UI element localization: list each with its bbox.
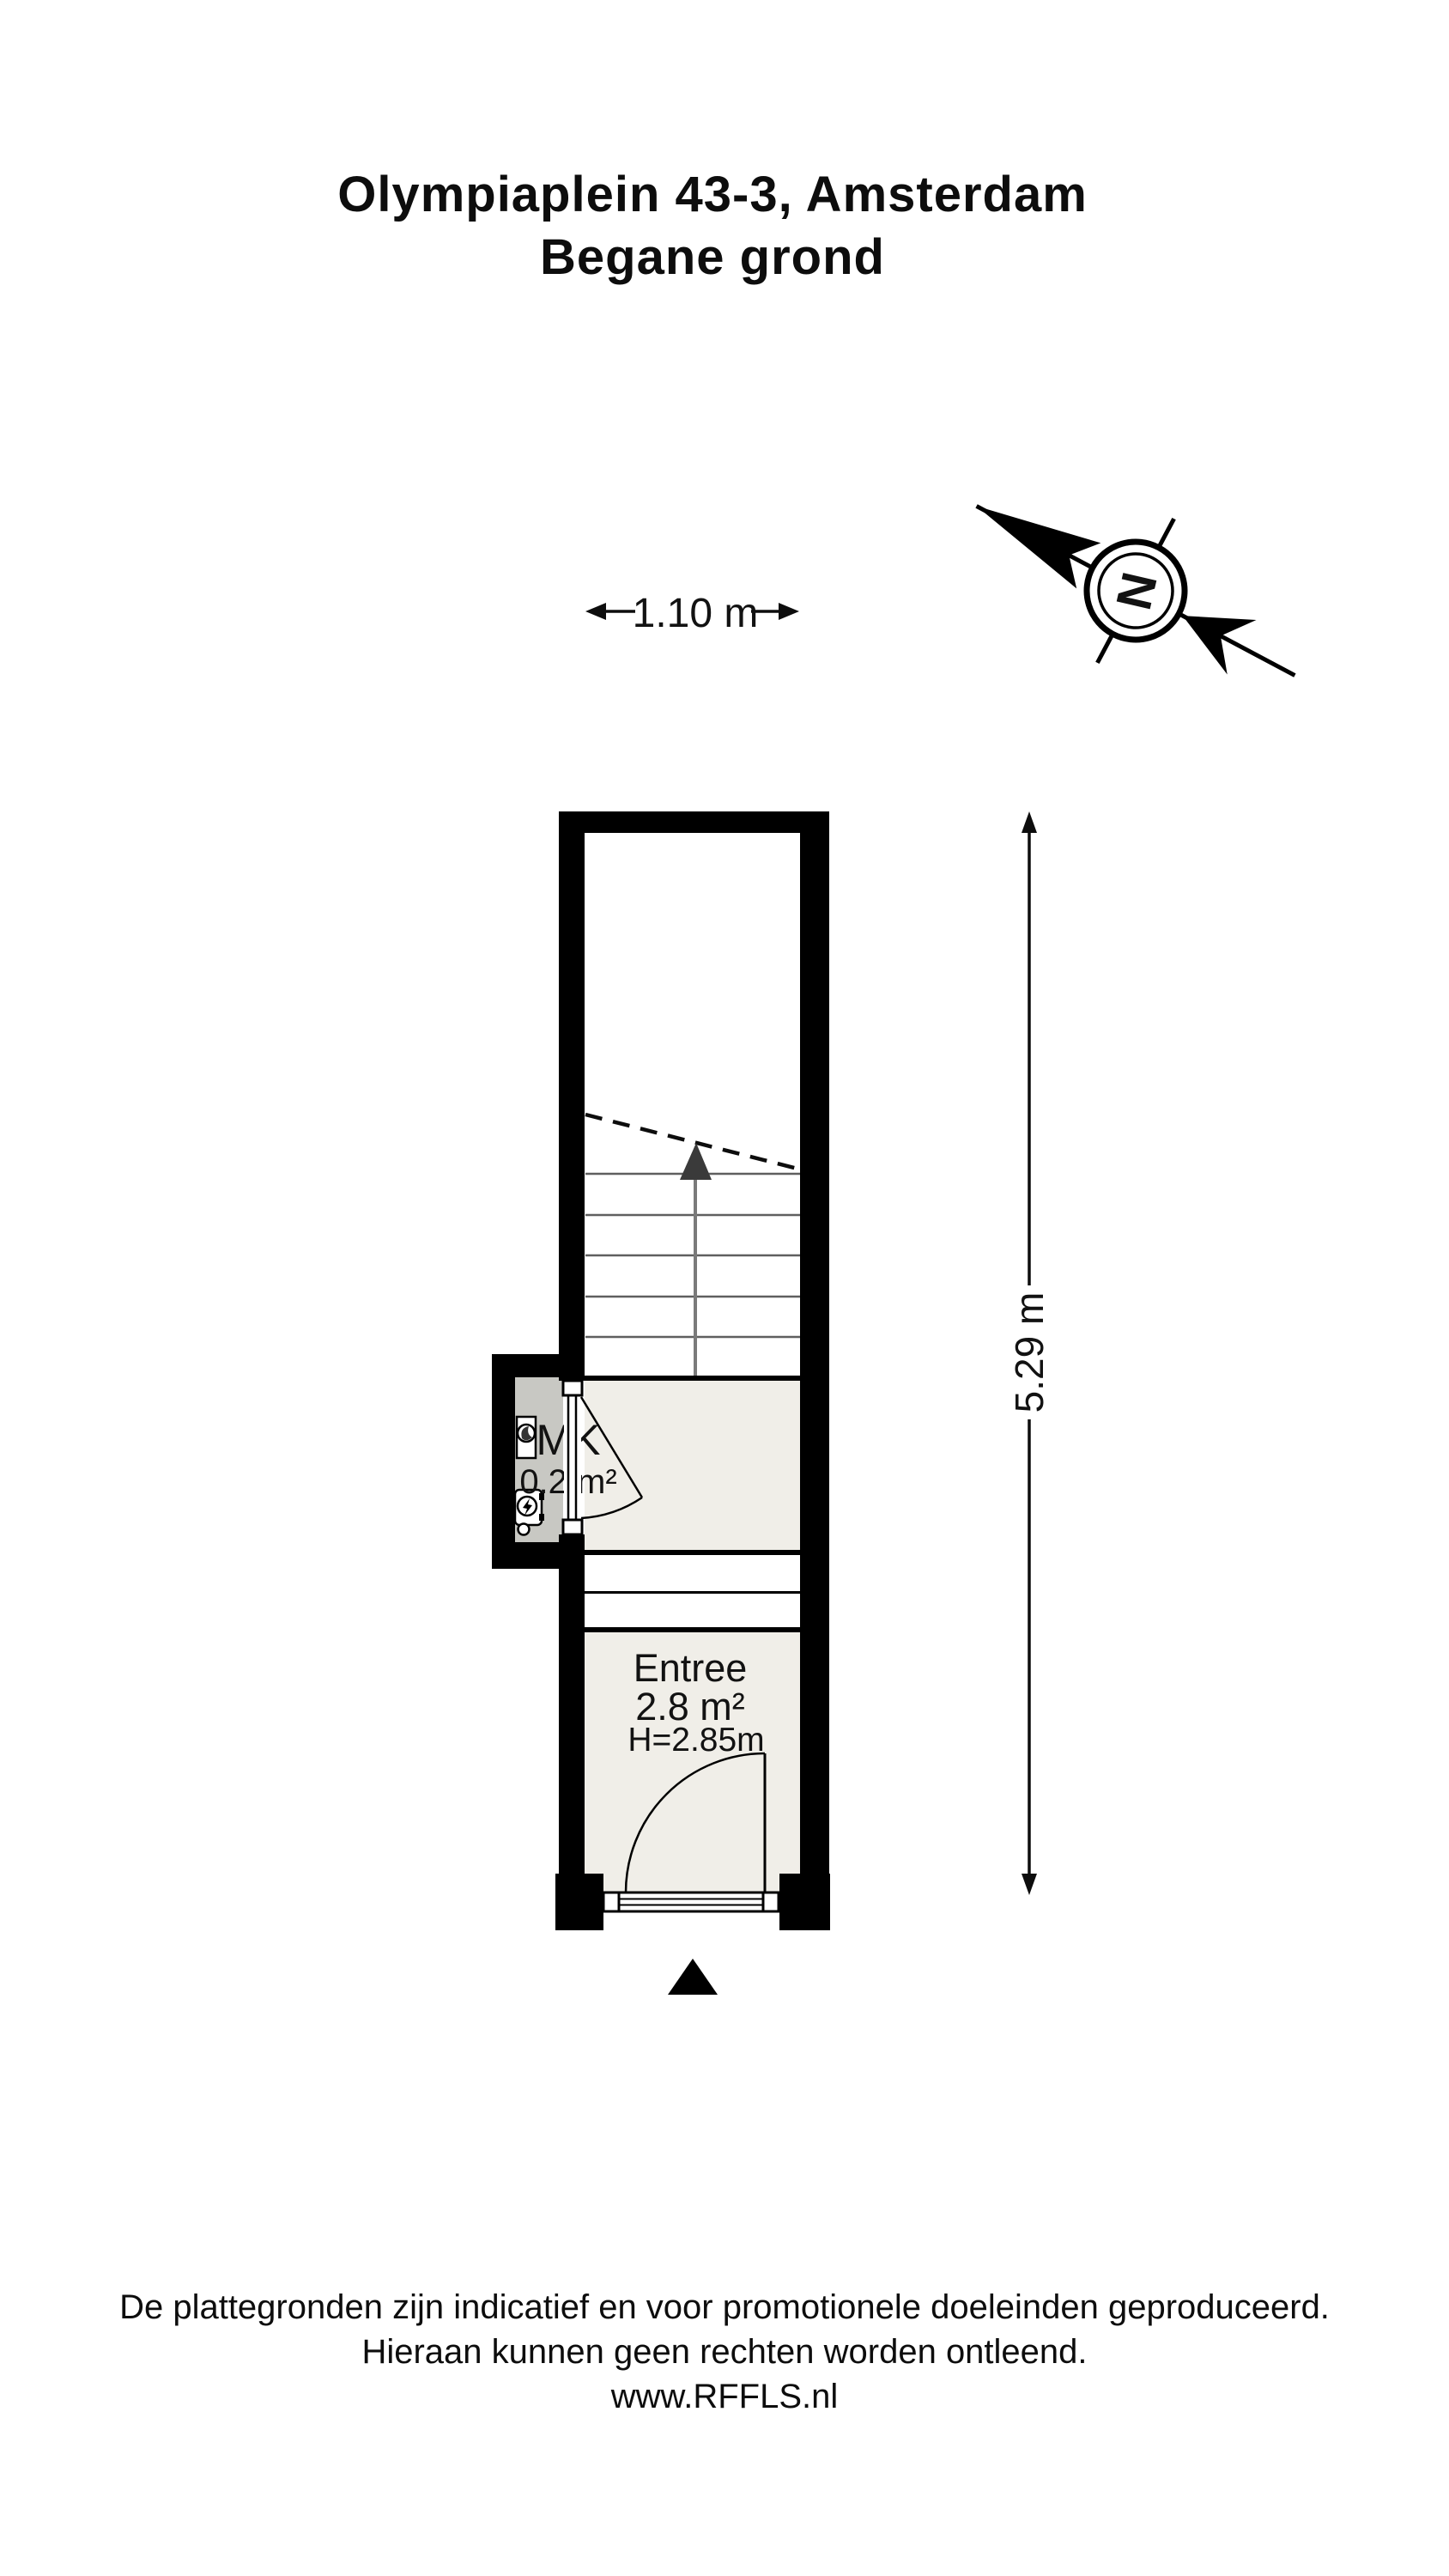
- width-dimension-label: 1.10 m: [633, 591, 759, 636]
- floor-plan-drawing: MK 0.2 m² Entree 2.8 m² H=2.85m 1.10 m: [0, 0, 1449, 2576]
- entree-room-label: Entree: [634, 1646, 748, 1690]
- gas-meter-icon: [518, 1524, 530, 1535]
- staircase: [585, 1115, 801, 1376]
- footer-website: www.RFFLS.nl: [0, 2374, 1449, 2419]
- entree-height-label: H=2.85m: [627, 1722, 764, 1759]
- stair-up-arrow-icon: [680, 1143, 712, 1180]
- footer-line-2: Hieraan kunnen geen rechten worden ontle…: [0, 2330, 1449, 2374]
- entrance-marker-icon: [668, 1959, 718, 1995]
- footer-disclaimer: De plattegronden zijn indicatief en voor…: [0, 2285, 1449, 2419]
- height-dimension: 5.29 m: [1007, 811, 1052, 1895]
- door-threshold: [603, 1893, 779, 1911]
- height-dimension-label: 5.29 m: [1007, 1292, 1052, 1413]
- north-compass-icon: N: [938, 434, 1333, 748]
- footer-line-1: De plattegronden zijn indicatief en voor…: [0, 2285, 1449, 2330]
- width-dimension: 1.10 m: [585, 591, 799, 636]
